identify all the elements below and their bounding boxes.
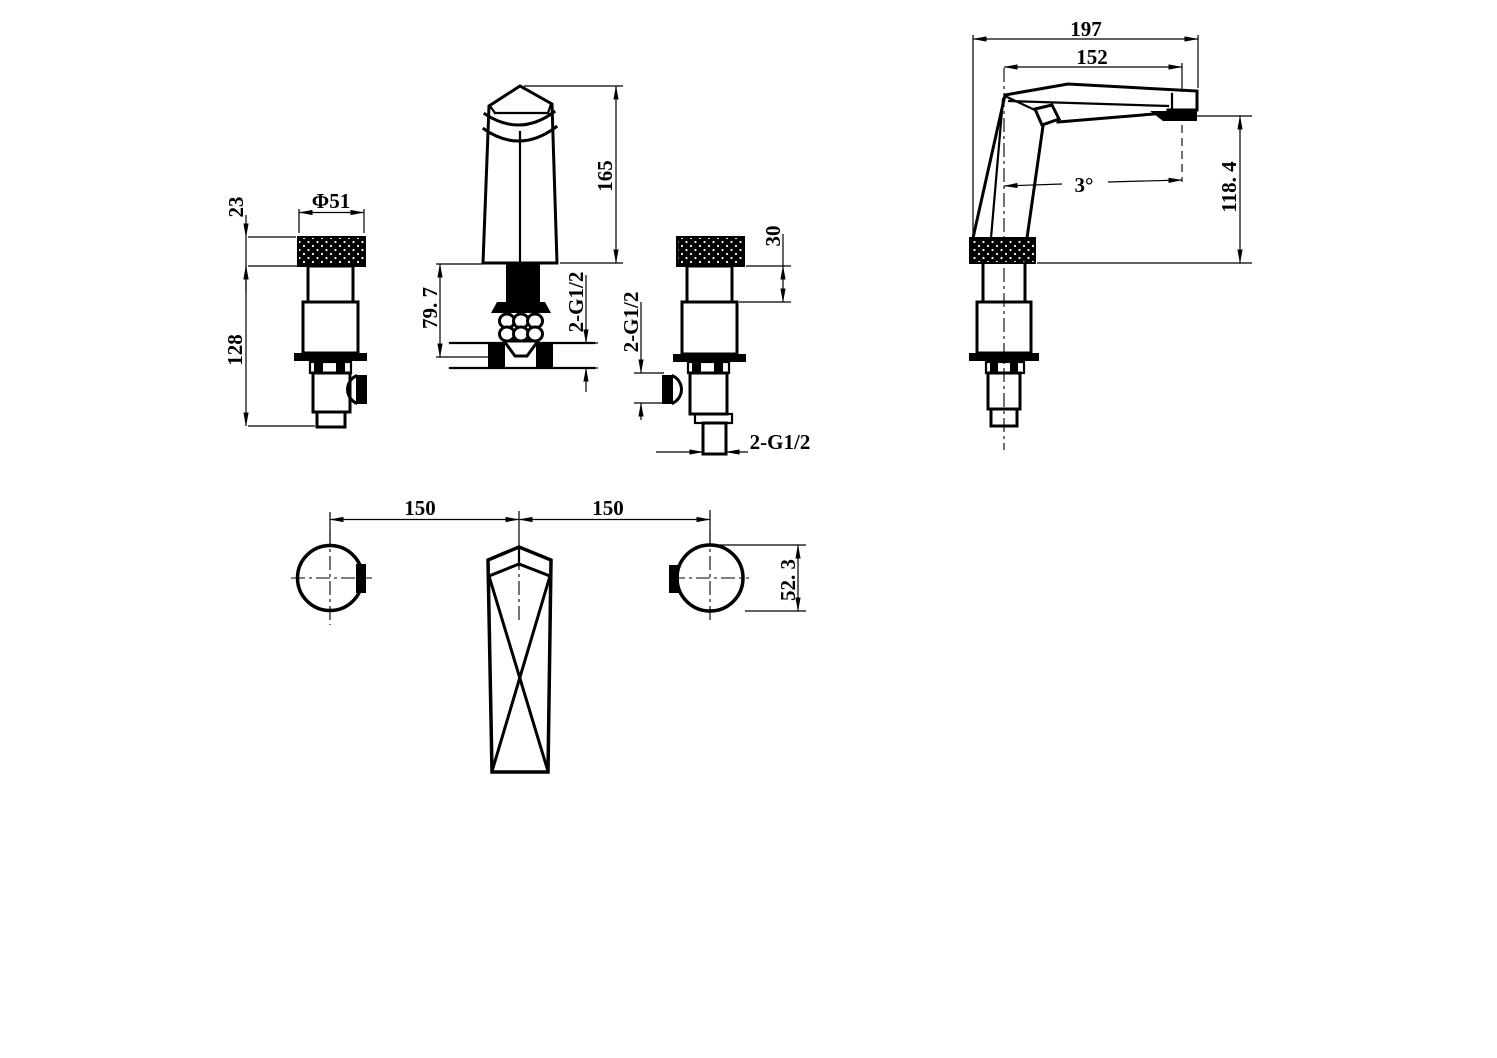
coupling-nut-bump (528, 327, 543, 341)
lower-housing (690, 373, 727, 414)
valve-cone (504, 341, 538, 356)
top-face-inner-edge (1009, 101, 1168, 106)
dim-label-spout-height: 118. 4 (1217, 161, 1241, 213)
inlet-port-right (536, 343, 553, 368)
technical-drawing-sheet: 23 Φ51 128 165 (0, 0, 1497, 1058)
spout-top-view-outline (488, 547, 551, 772)
shank-flange (491, 302, 551, 313)
dim-inlet-thread: 2-G1/2 (554, 272, 598, 392)
thread-block (314, 362, 323, 373)
thread-block (692, 362, 701, 373)
dim-cap-height: 23 (224, 197, 302, 293)
dim-label-overall-length: 197 (1070, 17, 1102, 41)
right-handle-valve-front-view (662, 237, 746, 454)
dim-label-bottom-thread: 2-G1/2 (750, 430, 811, 454)
mounting-flange (673, 354, 746, 362)
spout-side-view (969, 68, 1197, 450)
faucet-dimension-drawing: 23 Φ51 128 165 (0, 0, 1497, 1058)
valve-neck (687, 266, 732, 302)
right-handle-index (669, 565, 679, 593)
dim-label-right-spacing: 150 (592, 496, 624, 520)
facet-corner (548, 104, 551, 113)
valve-body (303, 302, 358, 353)
side-outlet-curve (348, 376, 356, 403)
knurled-cap (298, 237, 365, 266)
dim-label-left-spacing: 150 (404, 496, 436, 520)
bottom-inlet-tube (703, 423, 726, 454)
knurled-base-ring (970, 238, 1035, 263)
thread-block (336, 362, 345, 373)
thread-block (714, 362, 723, 373)
dim-label-spout-reach: 152 (1076, 45, 1108, 69)
dim-left-spacing: 150 (330, 496, 710, 547)
left-handle-valve-front-view (294, 237, 367, 427)
dim-side-port-thread: 2-G1/2 (619, 292, 664, 420)
lower-housing (313, 373, 350, 412)
mounting-flange (294, 353, 367, 361)
dim-spout-angle: 3° (1004, 173, 1182, 197)
side-inlet-port (662, 375, 673, 404)
thread-block (1010, 362, 1018, 373)
inlet-port-left (488, 343, 505, 368)
dim-label-under-counter: 79. 7 (418, 287, 442, 329)
valve-body (682, 302, 737, 354)
dim-label-cap-height: 23 (224, 197, 248, 218)
thread-block (990, 362, 998, 373)
dim-label-side-port-thread: 2-G1/2 (619, 292, 643, 353)
side-outlet-port (356, 375, 367, 404)
spout-underside (1058, 113, 1166, 122)
dim-label-cap-diameter: Φ51 (312, 189, 350, 213)
elbow-facet (1035, 105, 1059, 125)
dim-spout-height: 118. 4 (1037, 116, 1252, 263)
bottom-connector (317, 412, 345, 427)
dim-bottom-thread: 2-G1/2 (656, 430, 810, 454)
dim-label-handle-width: 52. 3 (776, 559, 800, 601)
dim-cap-diameter: Φ51 (299, 189, 364, 233)
side-inlet-curve (673, 376, 681, 403)
facet-corner (490, 106, 495, 113)
dim-neck-height: 30 (739, 226, 791, 303)
aerator (1150, 111, 1197, 121)
dim-label-spout-body-height: 165 (593, 160, 617, 192)
dim-label-spout-angle: 3° (1075, 173, 1094, 197)
dim-label-inlet-thread: 2-G1/2 (564, 272, 588, 333)
valve-neck (308, 266, 353, 302)
spout-outer-profile (973, 84, 1197, 238)
threaded-shank (506, 263, 540, 302)
dim-below-cap-height: 128 (223, 266, 315, 426)
plan-view (291, 531, 749, 772)
body-right-edge (1027, 126, 1043, 238)
dim-right-spacing: 150 (519, 496, 710, 520)
knurled-cap (677, 237, 744, 266)
body-facet-line (991, 99, 1003, 238)
dim-label-neck-height: 30 (761, 226, 785, 247)
elbow-edge (1007, 97, 1037, 111)
dim-label-below-cap-height: 128 (223, 334, 247, 366)
